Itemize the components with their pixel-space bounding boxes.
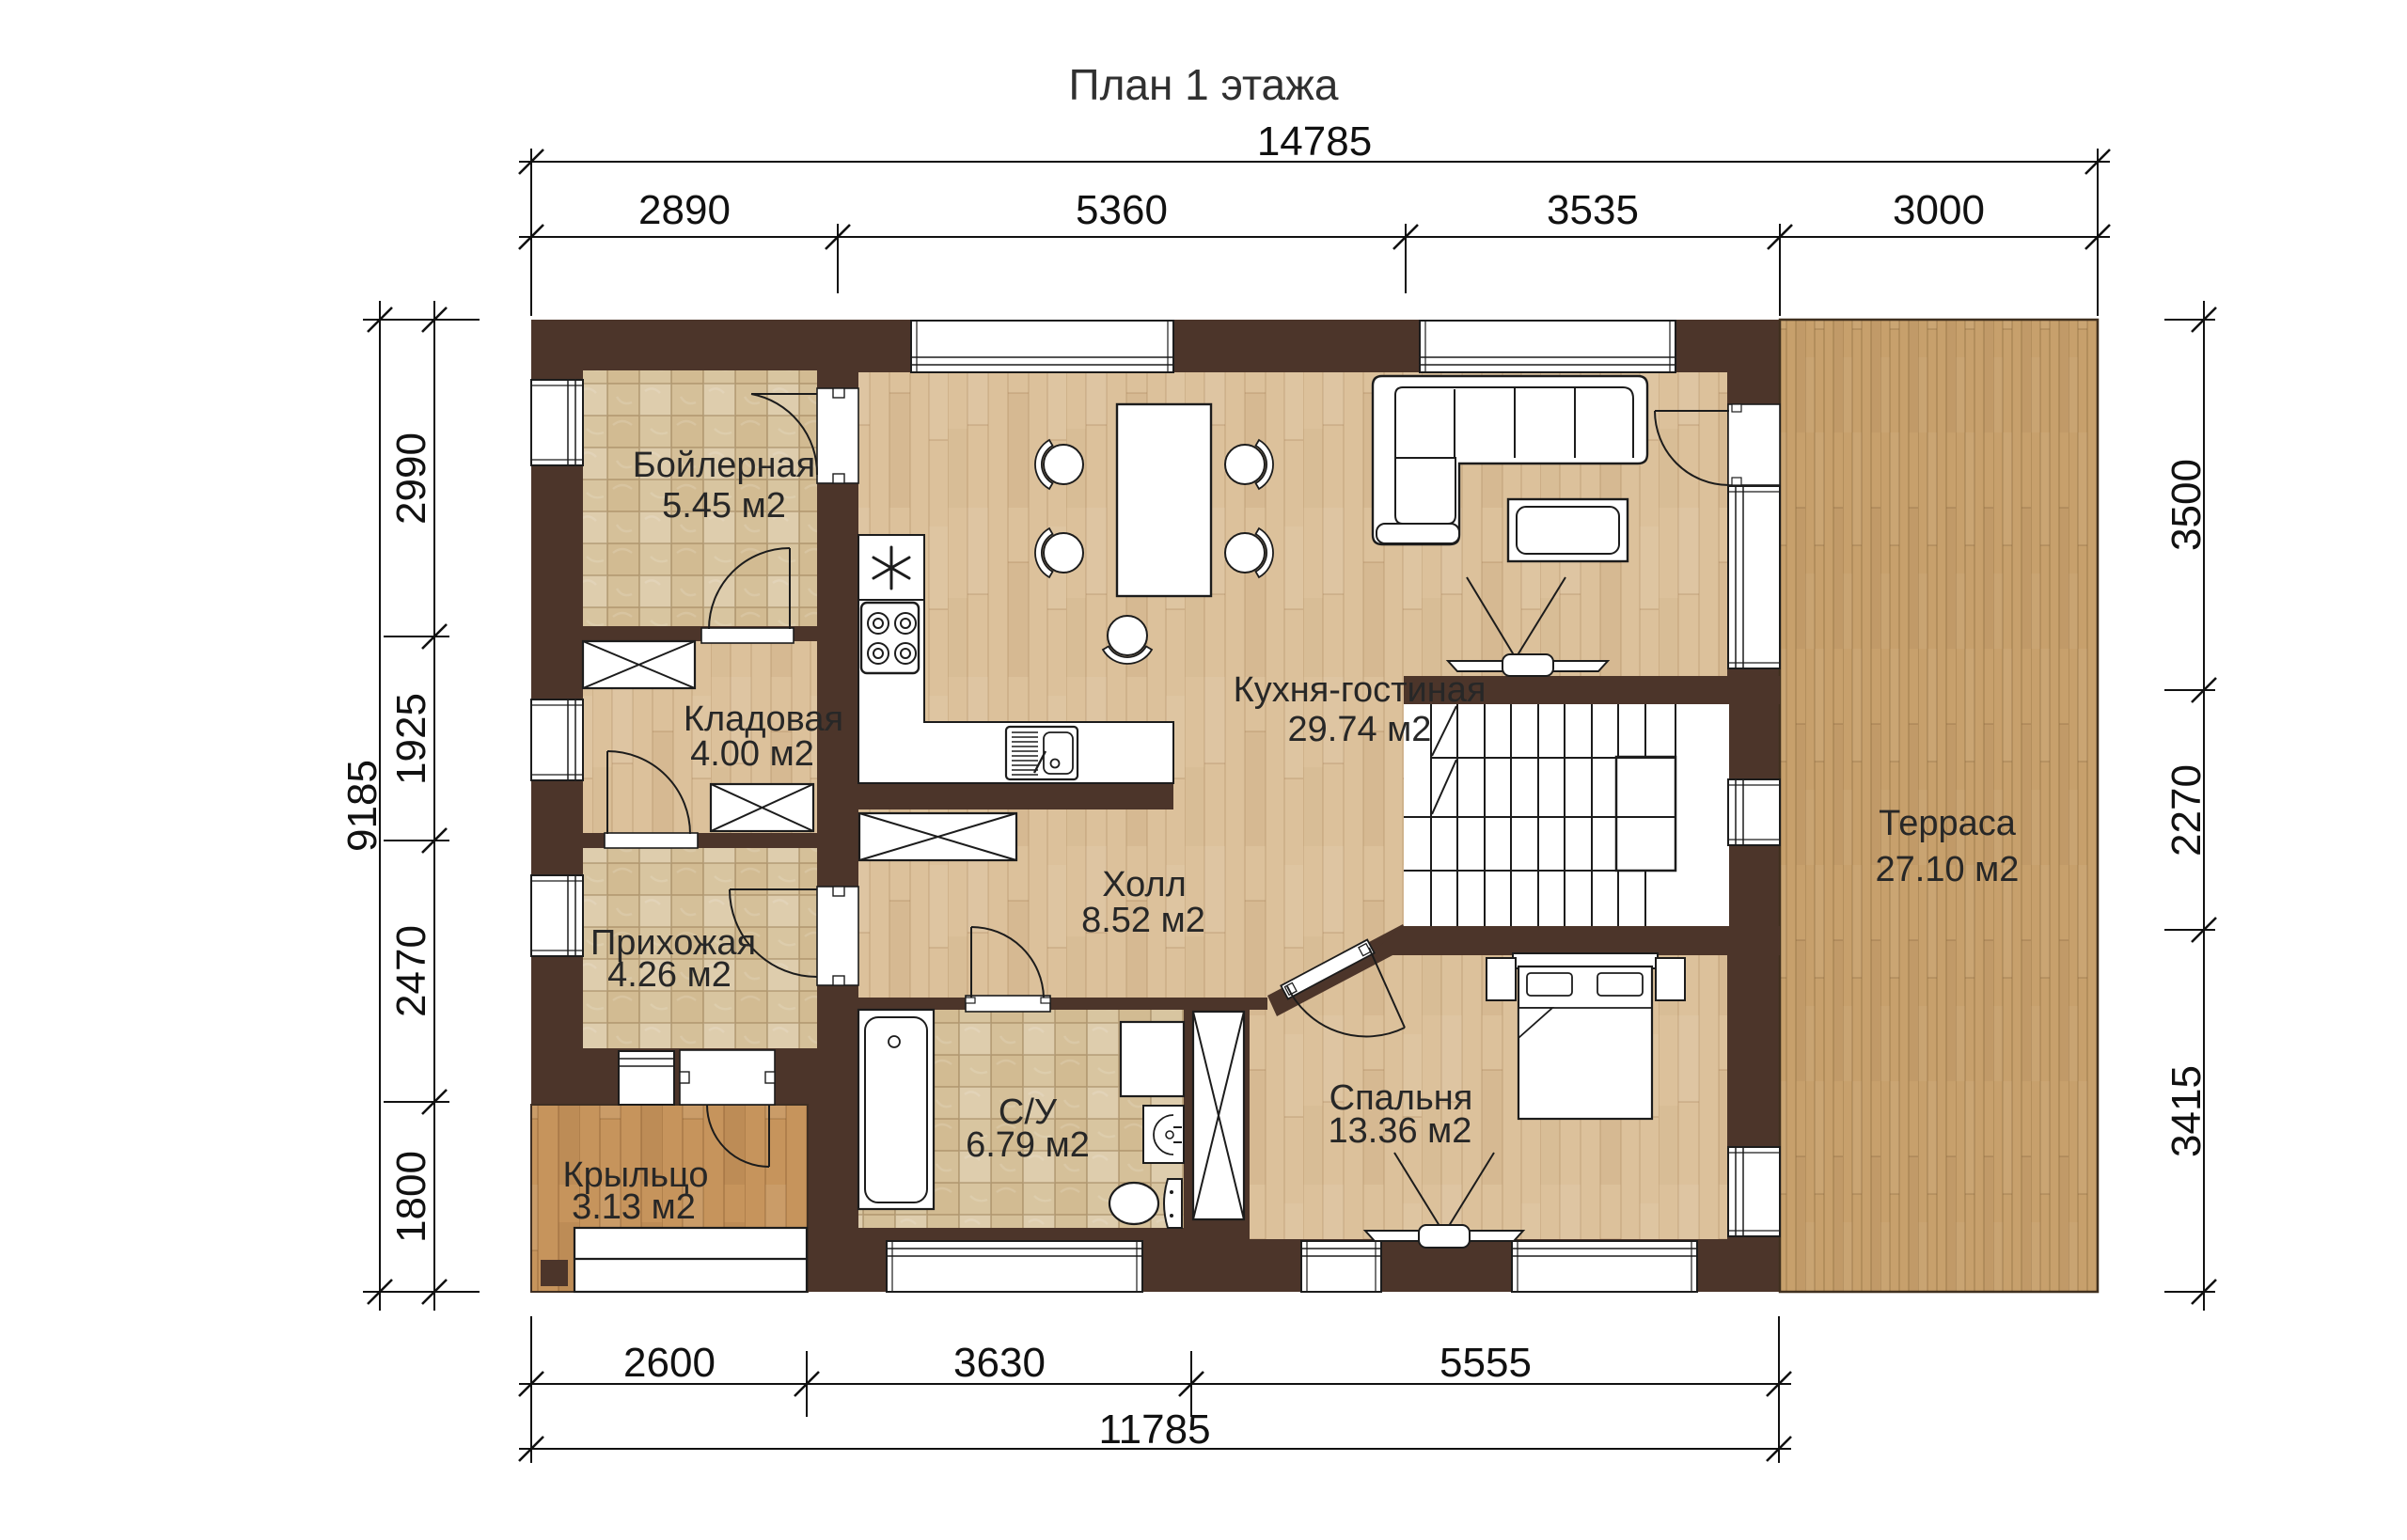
svg-text:2270: 2270 bbox=[2163, 764, 2210, 856]
svg-text:План 1 этажа: План 1 этажа bbox=[1069, 60, 1339, 109]
svg-text:3535: 3535 bbox=[1547, 187, 1639, 233]
svg-text:8.52 м2: 8.52 м2 bbox=[1081, 901, 1205, 940]
svg-text:3000: 3000 bbox=[1893, 187, 1985, 233]
svg-text:6.79 м2: 6.79 м2 bbox=[966, 1125, 1090, 1165]
svg-text:Кладовая: Кладовая bbox=[684, 699, 843, 739]
svg-text:3630: 3630 bbox=[953, 1340, 1046, 1386]
svg-text:5360: 5360 bbox=[1076, 187, 1168, 233]
svg-text:4.26 м2: 4.26 м2 bbox=[607, 955, 732, 995]
svg-text:Бойлерная: Бойлерная bbox=[633, 446, 815, 485]
svg-text:13.36 м2: 13.36 м2 bbox=[1329, 1111, 1472, 1151]
svg-text:29.74 м2: 29.74 м2 bbox=[1288, 710, 1432, 749]
svg-text:5.45 м2: 5.45 м2 bbox=[662, 486, 786, 526]
svg-text:2600: 2600 bbox=[623, 1340, 716, 1386]
svg-text:14785: 14785 bbox=[1257, 118, 1372, 165]
svg-text:5555: 5555 bbox=[1439, 1340, 1532, 1386]
svg-text:1925: 1925 bbox=[388, 693, 434, 785]
svg-text:3415: 3415 bbox=[2163, 1065, 2210, 1157]
svg-text:1800: 1800 bbox=[388, 1151, 434, 1243]
svg-text:Терраса: Терраса bbox=[1879, 804, 2017, 843]
svg-text:2470: 2470 bbox=[388, 925, 434, 1017]
svg-text:3500: 3500 bbox=[2163, 459, 2210, 551]
svg-text:4.00 м2: 4.00 м2 bbox=[690, 734, 814, 774]
svg-text:11785: 11785 bbox=[1098, 1406, 1210, 1453]
svg-text:2890: 2890 bbox=[638, 187, 731, 233]
svg-text:Холл: Холл bbox=[1102, 865, 1187, 904]
svg-text:3.13 м2: 3.13 м2 bbox=[572, 1187, 696, 1227]
svg-text:27.10 м2: 27.10 м2 bbox=[1876, 850, 2020, 889]
svg-text:Кухня-гостиная: Кухня-гостиная bbox=[1234, 670, 1487, 710]
svg-text:2990: 2990 bbox=[388, 432, 434, 525]
svg-text:9185: 9185 bbox=[339, 760, 385, 852]
